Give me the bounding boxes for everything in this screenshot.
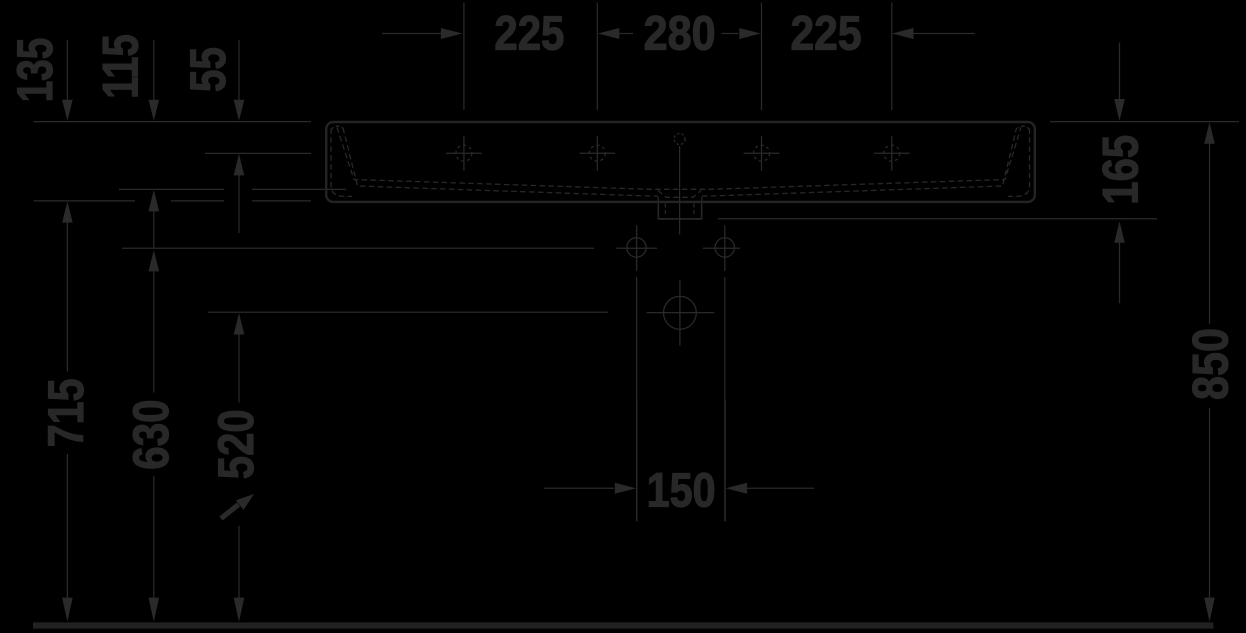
svg-text:55: 55 xyxy=(180,47,236,92)
svg-text:135: 135 xyxy=(7,38,63,103)
svg-text:520: 520 xyxy=(208,409,264,479)
svg-text:280: 280 xyxy=(644,6,716,60)
svg-text:850: 850 xyxy=(1183,328,1239,400)
svg-text:225: 225 xyxy=(791,6,862,60)
svg-text:715: 715 xyxy=(38,379,94,448)
svg-text:165: 165 xyxy=(1093,135,1149,205)
svg-text:150: 150 xyxy=(647,464,716,518)
svg-text:115: 115 xyxy=(93,34,149,99)
svg-text:630: 630 xyxy=(123,400,179,470)
svg-text:225: 225 xyxy=(494,6,564,60)
